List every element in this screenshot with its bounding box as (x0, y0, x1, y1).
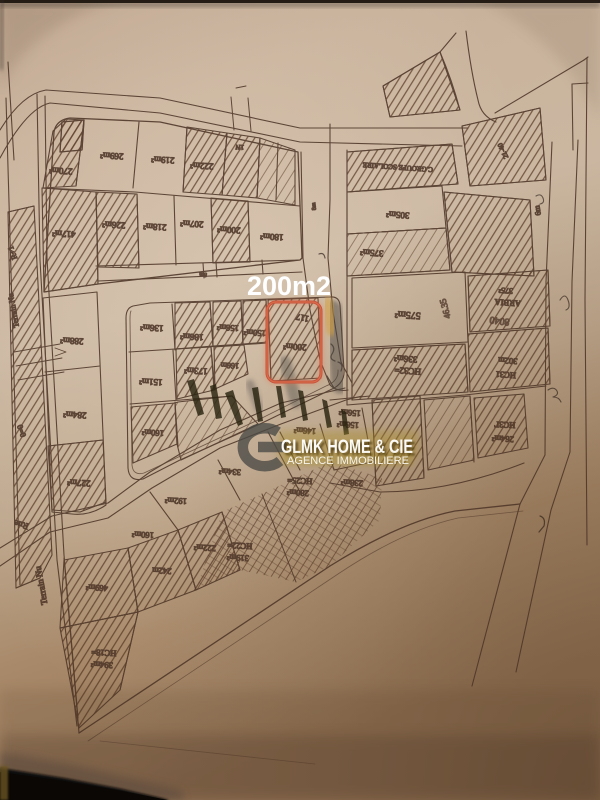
svg-text:200m²: 200m² (217, 224, 241, 235)
svg-text:305m²: 305m² (386, 209, 410, 221)
svg-text:302m: 302m (497, 355, 517, 366)
svg-text:319m²: 319m² (226, 552, 249, 563)
svg-text:HC25=: HC25= (287, 475, 313, 486)
svg-text:469m²: 469m² (85, 582, 108, 593)
svg-text:186m²: 186m² (180, 331, 204, 342)
svg-text:336m²: 336m² (394, 353, 418, 365)
svg-text:280m²: 280m² (286, 487, 309, 498)
svg-text:HC32=: HC32= (394, 365, 421, 377)
svg-text:160m²: 160m² (131, 529, 154, 540)
svg-text:334m²: 334m² (218, 466, 241, 477)
svg-text:222m²: 222m² (190, 160, 214, 171)
svg-text:218m²: 218m² (143, 221, 167, 232)
svg-text:160m²: 160m² (141, 427, 164, 438)
svg-text:AGENCE IMMOBILIERE: AGENCE IMMOBILIERE (287, 455, 409, 467)
svg-text:180m²: 180m² (260, 231, 284, 242)
svg-text:150m²: 150m² (243, 327, 266, 338)
svg-text:394m²: 394m² (90, 659, 113, 670)
svg-text:166m: 166m (220, 360, 239, 370)
svg-text:270m²: 270m² (49, 165, 73, 176)
svg-text:HC31: HC31 (495, 369, 516, 380)
svg-text:151m²: 151m² (139, 376, 163, 387)
svg-text:156m²: 156m² (216, 322, 239, 333)
svg-text:207m²: 207m² (180, 218, 204, 229)
svg-text:226m²: 226m² (102, 219, 126, 230)
svg-text:200m²: 200m² (283, 341, 307, 352)
svg-text:1N: 1N (235, 143, 244, 152)
svg-text:227m²: 227m² (67, 477, 91, 488)
svg-text:288m²: 288m² (60, 335, 84, 346)
svg-text:417m²: 417m² (52, 228, 76, 239)
svg-text:375²: 375² (498, 285, 514, 295)
svg-text:192m²: 192m² (164, 495, 187, 506)
svg-text:HC18=: HC18= (91, 647, 117, 658)
svg-text:ARBIA: ARBIA (493, 297, 521, 309)
svg-text:242m: 242m (152, 565, 172, 576)
svg-text:219m²: 219m² (151, 154, 175, 165)
svg-text:575m²: 575m² (395, 308, 421, 321)
svg-text:136m²: 136m² (140, 322, 164, 333)
svg-text:200m2: 200m2 (247, 271, 331, 301)
svg-text:284m²: 284m² (63, 409, 87, 420)
svg-text:8m: 8m (199, 271, 207, 277)
svg-text:269m²: 269m² (100, 150, 124, 161)
svg-text:8m: 8m (311, 202, 318, 211)
svg-text:375m²: 375m² (360, 247, 384, 259)
svg-text:173m²: 173m² (184, 365, 208, 376)
svg-text:HC22=: HC22= (227, 540, 253, 551)
